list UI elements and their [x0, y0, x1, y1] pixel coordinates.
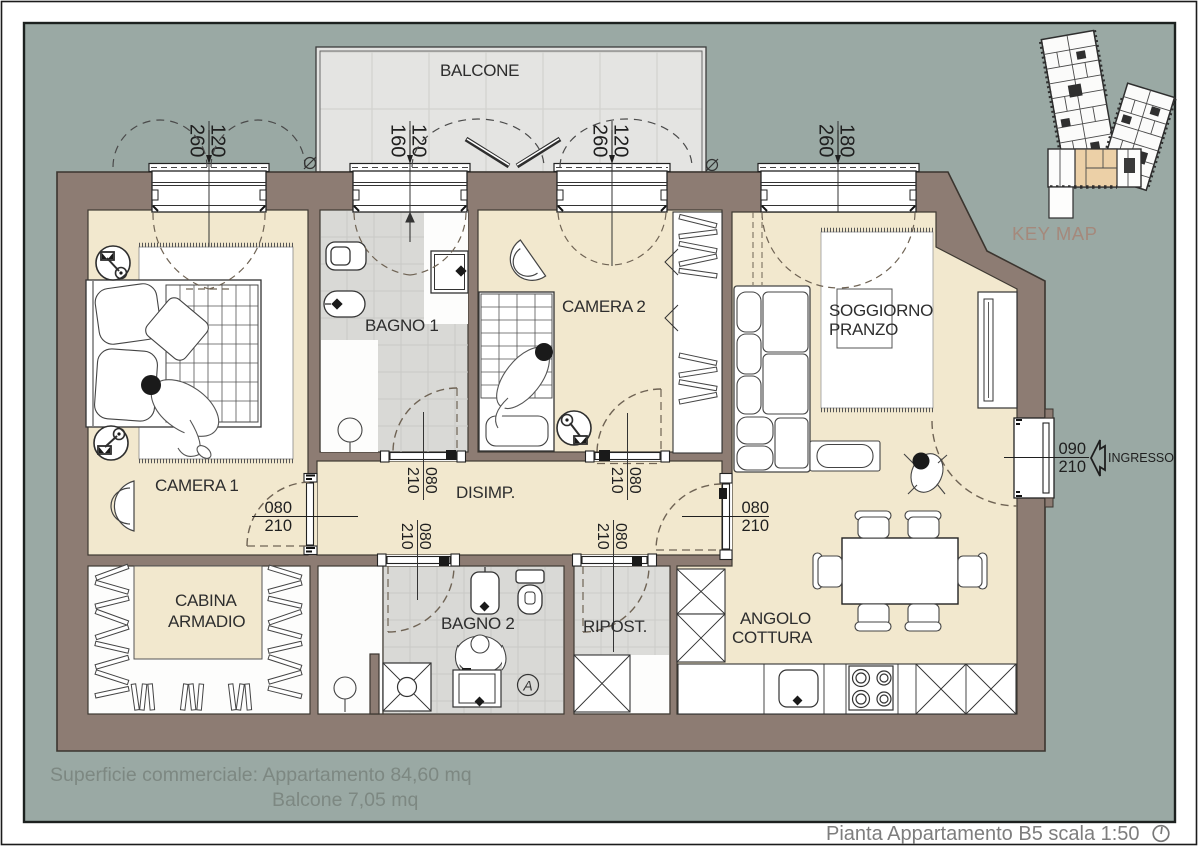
- svg-text:080: 080: [741, 499, 769, 517]
- svg-text:120: 120: [408, 124, 430, 157]
- svg-text:BAGNO 2: BAGNO 2: [441, 614, 514, 633]
- svg-text:COTTURA: COTTURA: [732, 628, 813, 647]
- svg-text:210: 210: [398, 523, 415, 550]
- svg-text:210: 210: [608, 467, 625, 494]
- svg-text:210: 210: [594, 523, 611, 550]
- svg-text:120: 120: [207, 124, 229, 157]
- svg-text:RIPOST.: RIPOST.: [583, 617, 647, 636]
- svg-text:260: 260: [815, 124, 837, 157]
- svg-text:080: 080: [612, 523, 629, 550]
- svg-text:SOGGIORNO: SOGGIORNO: [829, 301, 933, 320]
- svg-text:080: 080: [422, 467, 439, 494]
- svg-text:210: 210: [404, 467, 421, 494]
- svg-text:080: 080: [416, 523, 433, 550]
- svg-text:A: A: [522, 678, 532, 694]
- svg-text:210: 210: [1058, 458, 1086, 476]
- svg-text:120: 120: [610, 124, 632, 157]
- svg-text:260: 260: [589, 124, 611, 157]
- svg-text:210: 210: [741, 517, 769, 535]
- svg-text:Superficie commerciale: Appart: Superficie commerciale: Appartamento 84,…: [50, 764, 472, 786]
- svg-text:CABINA: CABINA: [175, 591, 237, 610]
- svg-text:160: 160: [387, 124, 409, 157]
- svg-text:KEY MAP: KEY MAP: [1012, 223, 1097, 244]
- svg-text:INGRESSO: INGRESSO: [1108, 451, 1174, 465]
- svg-text:090: 090: [1058, 440, 1086, 458]
- svg-text:Balcone 7,05 mq: Balcone 7,05 mq: [272, 789, 418, 811]
- svg-text:CAMERA 2: CAMERA 2: [562, 297, 646, 316]
- svg-text:210: 210: [264, 517, 292, 535]
- svg-text:080: 080: [264, 499, 292, 517]
- svg-text:PRANZO: PRANZO: [829, 320, 898, 339]
- svg-text:ANGOLO: ANGOLO: [740, 609, 811, 628]
- svg-text:180: 180: [836, 124, 858, 157]
- svg-text:CAMERA 1: CAMERA 1: [155, 476, 239, 495]
- svg-text:080: 080: [626, 467, 643, 494]
- svg-text:BALCONE: BALCONE: [440, 61, 519, 80]
- svg-text:BAGNO 1: BAGNO 1: [365, 316, 438, 335]
- svg-text:Pianta Appartamento B5 scala: Pianta Appartamento B5 scala 1:50: [826, 823, 1140, 845]
- svg-text:ARMADIO: ARMADIO: [168, 612, 245, 631]
- svg-text:DISIMP.: DISIMP.: [456, 483, 515, 502]
